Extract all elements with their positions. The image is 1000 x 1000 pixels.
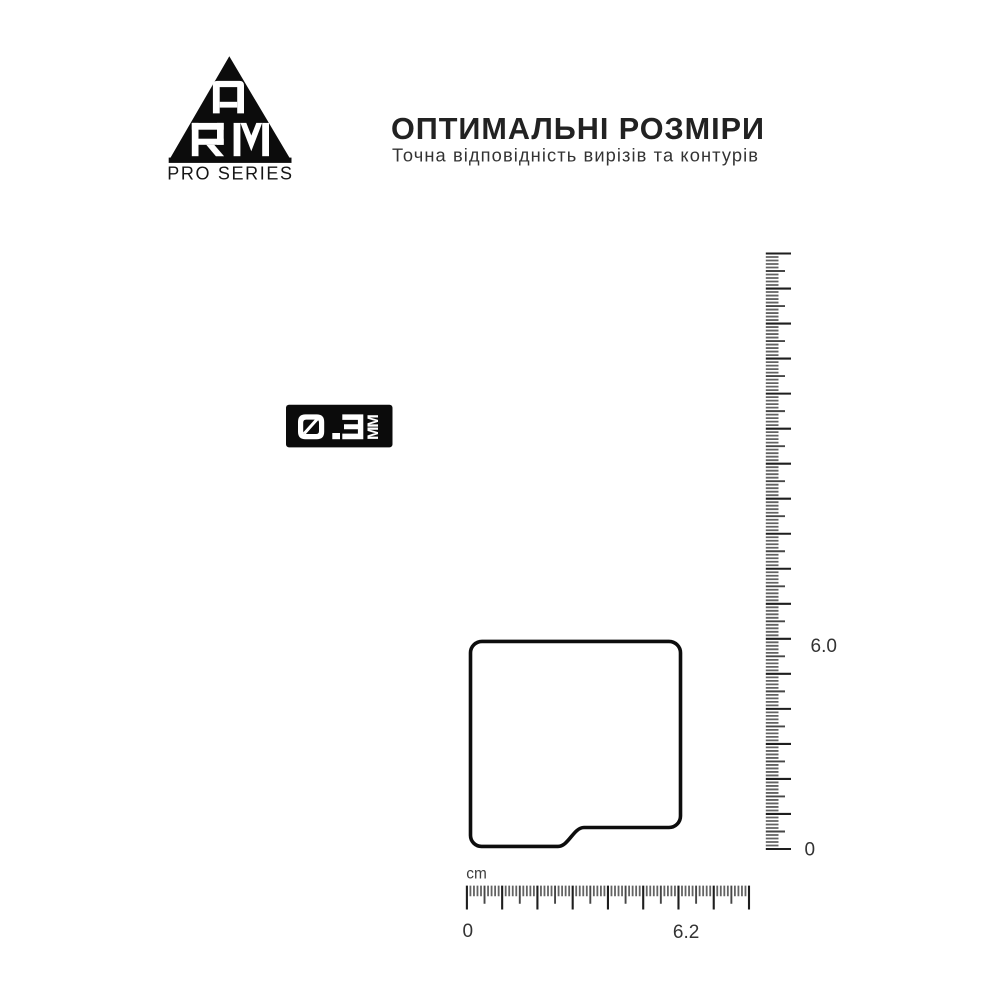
svg-text:ОПТИМАЛЬНІ РОЗМІРИ: ОПТИМАЛЬНІ РОЗМІРИ: [391, 112, 764, 146]
svg-text:6.2: 6.2: [673, 922, 699, 943]
svg-text:Точна відповідність вирізів та: Точна відповідність вирізів та контурів: [392, 145, 758, 166]
svg-text:PRO SERIES: PRO SERIES: [167, 164, 292, 184]
svg-text:6.0: 6.0: [811, 636, 837, 657]
svg-text:0: 0: [463, 921, 474, 942]
svg-text:мм: мм: [362, 414, 383, 440]
svg-text:0: 0: [805, 839, 816, 860]
svg-text:cm: cm: [466, 866, 487, 883]
